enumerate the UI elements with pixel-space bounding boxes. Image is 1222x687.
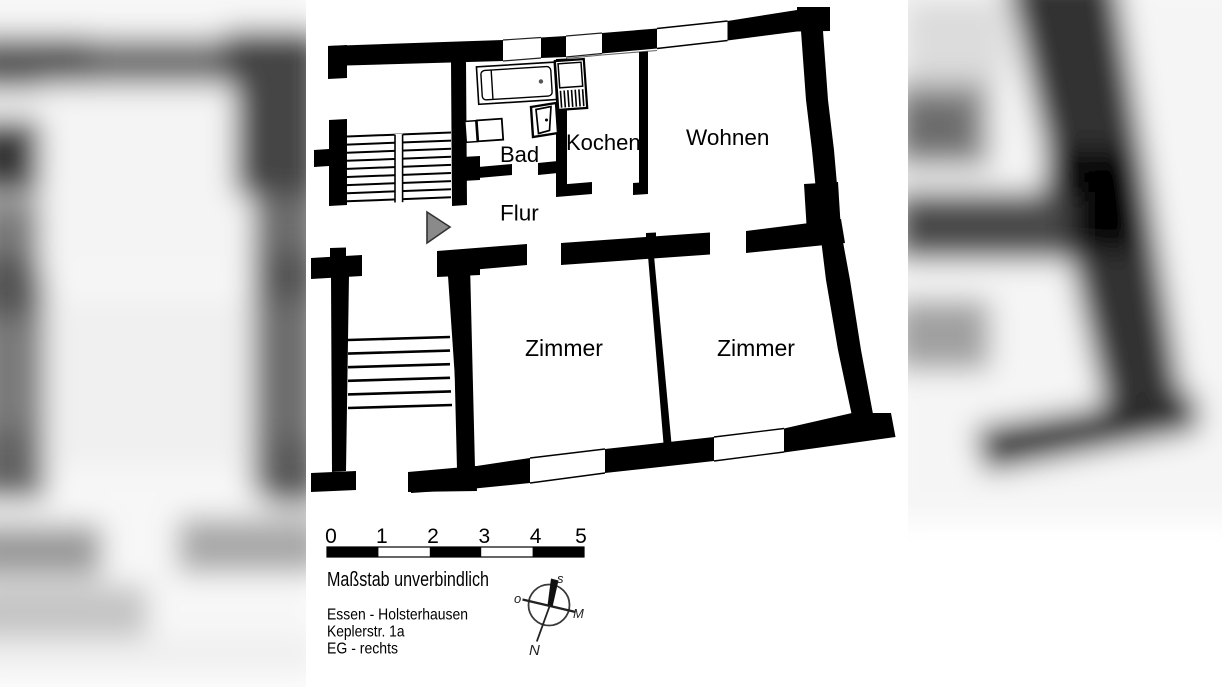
svg-text:4: 4	[530, 525, 542, 548]
svg-text:EG - rechts: EG - rechts	[327, 640, 398, 657]
svg-text:Zimmer: Zimmer	[717, 335, 795, 361]
svg-text:Zimmer: Zimmer	[525, 335, 603, 361]
svg-text:Maßstab unverbindlich: Maßstab unverbindlich	[327, 569, 489, 591]
svg-text:s: s	[557, 571, 564, 586]
svg-text:Bad: Bad	[500, 142, 539, 167]
svg-text:Keplerstr. 1a: Keplerstr. 1a	[327, 623, 405, 640]
svg-text:Flur: Flur	[500, 201, 539, 226]
svg-text:1: 1	[376, 525, 388, 548]
svg-text:0: 0	[325, 525, 337, 548]
svg-text:o: o	[514, 591, 521, 606]
svg-text:M: M	[573, 606, 584, 621]
svg-text:Essen - Holsterhausen: Essen - Holsterhausen	[327, 607, 468, 624]
svg-text:5: 5	[575, 525, 587, 548]
svg-text:Wohnen: Wohnen	[686, 125, 769, 150]
svg-text:Kochen: Kochen	[566, 130, 641, 155]
svg-text:N: N	[529, 642, 540, 659]
svg-text:3: 3	[478, 525, 490, 548]
svg-text:2: 2	[427, 525, 439, 548]
